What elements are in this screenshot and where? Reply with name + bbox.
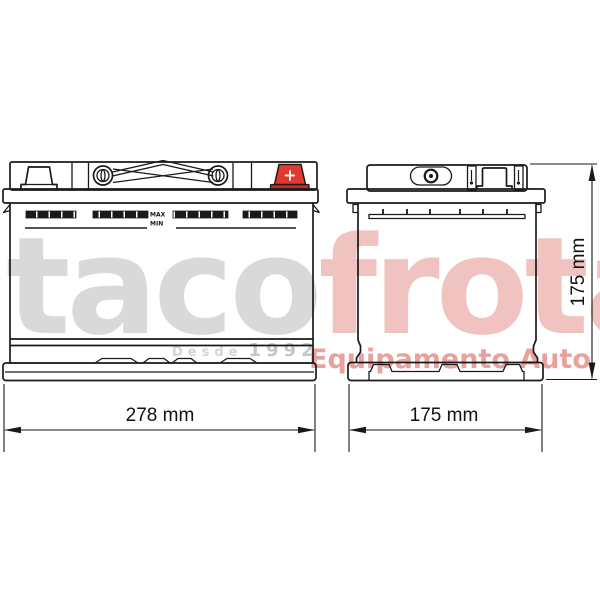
side-label-strip-ticks — [383, 209, 507, 215]
side-base-slab — [348, 363, 543, 381]
height-dim-arrow-top — [589, 165, 596, 182]
battery-dimension-diagram: tacofrota Desde1992 Equipamento Auto — [0, 0, 600, 600]
handle-grip-right-slot — [216, 170, 220, 181]
side-width-dimension-label: 175 mm — [384, 405, 504, 428]
front-lid-flange — [3, 189, 318, 203]
max-level-label: MAX — [150, 212, 166, 219]
side-post-right-pin-dot — [517, 181, 520, 184]
side-case — [353, 203, 541, 363]
front-dim-arrow-right — [298, 427, 315, 433]
side-lid-top — [367, 165, 527, 191]
side-base-pads — [369, 365, 524, 381]
label-strip-4 — [243, 211, 297, 218]
side-dim-arrow-left — [349, 427, 366, 433]
side-base — [348, 363, 543, 381]
handle-grip-left-slot — [101, 170, 105, 181]
negative-terminal — [21, 167, 57, 189]
front-dim-arrow-left — [4, 427, 21, 433]
min-level-label: MIN — [150, 221, 163, 228]
side-post-left-pin-dot — [470, 181, 473, 184]
battery-technical-drawing: + MAX MIN — [0, 0, 600, 600]
side-height-dimension-label: 175 mm — [568, 230, 588, 314]
front-base — [3, 359, 316, 381]
plus-sign: + — [283, 166, 296, 185]
handle-grip-right-inner — [212, 170, 224, 182]
negative-terminal-outline — [21, 167, 57, 189]
height-dim-arrow-bottom — [589, 363, 596, 380]
side-case-wall-right — [534, 203, 538, 363]
label-strip-1 — [26, 211, 76, 218]
side-dim-arrow-right — [525, 427, 542, 433]
handle-straps — [113, 161, 214, 183]
side-label-strip — [369, 215, 525, 219]
label-strip-3 — [173, 211, 228, 218]
front-width-dimension-label: 278 mm — [100, 405, 220, 428]
side-terminal-block — [477, 168, 512, 189]
side-case-wall-left — [357, 203, 361, 363]
carry-handle — [94, 161, 228, 186]
handle-grip-left-inner — [97, 170, 109, 182]
front-case-ridge-lines — [10, 339, 313, 346]
side-case-tabs — [353, 205, 541, 213]
label-strip-2 — [93, 211, 148, 218]
positive-terminal: + — [271, 165, 310, 191]
handle-pivot-dot — [429, 174, 433, 178]
